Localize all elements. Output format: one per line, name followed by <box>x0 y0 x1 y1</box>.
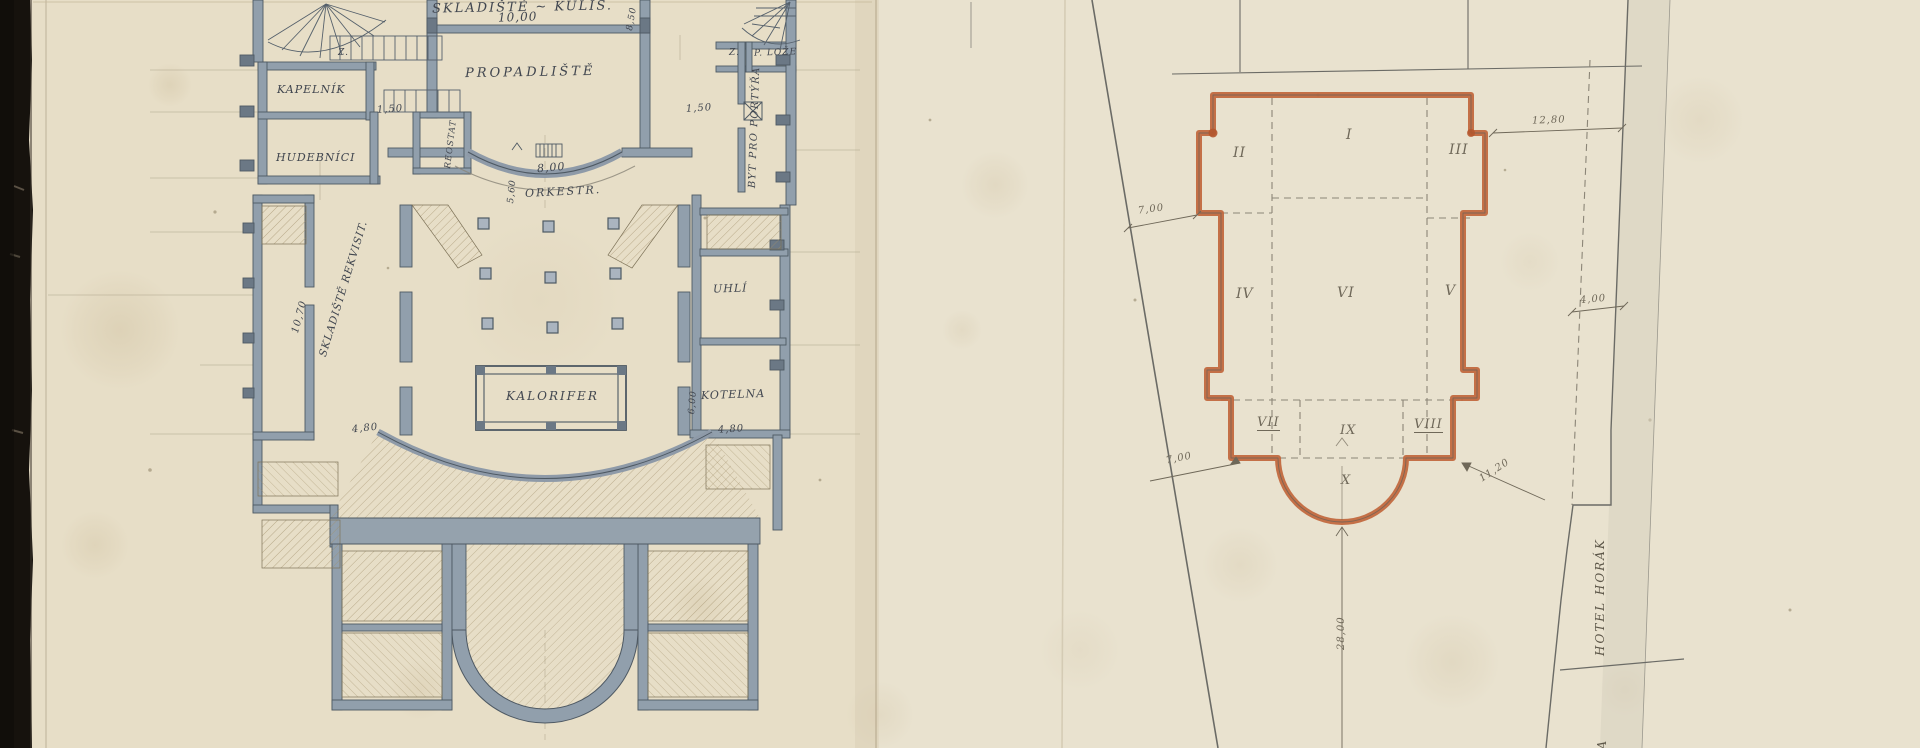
numeral-IX: IX <box>1340 424 1356 437</box>
room-label-z-right: Z. <box>729 49 740 58</box>
stair-flight-left <box>330 36 460 112</box>
dim-portyr-door: 1,50 <box>686 103 713 115</box>
street-name-cut-label: NA <box>1596 739 1608 748</box>
room-label-uhli: UHLÍ <box>713 282 748 294</box>
photo-edge <box>0 0 33 748</box>
drawing-sheet: SKLADIŠTĚ ~ KULIS. 10,00 8,50 PROPADLIŠT… <box>0 0 1920 748</box>
numeral-III: III <box>1449 143 1469 157</box>
dim-orkestr-width: 8,00 <box>537 161 566 174</box>
plan-drawing <box>0 0 1920 748</box>
room-label-p-loze: P. LOŽE <box>754 48 797 59</box>
room-label-propadliste: PROPADLIŠTĚ <box>465 65 596 80</box>
numeral-X: X <box>1341 474 1351 487</box>
dim-northeast-offset: 12,80 <box>1532 115 1566 126</box>
room-label-kapelnik: KAPELNÍK <box>277 84 346 95</box>
orchestra-grille <box>512 143 562 157</box>
numeral-II: II <box>1233 146 1246 160</box>
numeral-VII: VII <box>1257 416 1280 431</box>
room-label-z-left: Z. <box>338 49 349 58</box>
room-label-hudebnici: HUDEBNÍCI <box>276 152 356 163</box>
dim-kapelnik-door: 1,50 <box>377 104 404 116</box>
numeral-IV: IV <box>1236 287 1254 301</box>
numeral-I: I <box>1346 128 1353 142</box>
numeral-VI: VI <box>1337 286 1355 300</box>
numeral-VIII: VIII <box>1414 418 1443 433</box>
hotel-horak-label: HOTEL HORÁK <box>1594 538 1606 656</box>
spiral-stair-left <box>268 4 386 58</box>
street-band <box>1600 0 1670 748</box>
dim-kulis-width: 10,00 <box>498 10 538 23</box>
theatre-plan <box>48 0 860 740</box>
dim-south-depth: 28,00 <box>1337 616 1347 650</box>
room-label-kotelna: KOTELNA <box>701 388 766 401</box>
dim-kotelna-width: 4,80 <box>718 424 745 436</box>
room-label-kalorifer: KALORIFER <box>506 390 599 402</box>
numeral-V: V <box>1445 284 1456 298</box>
dimension-lines <box>1124 124 1628 748</box>
